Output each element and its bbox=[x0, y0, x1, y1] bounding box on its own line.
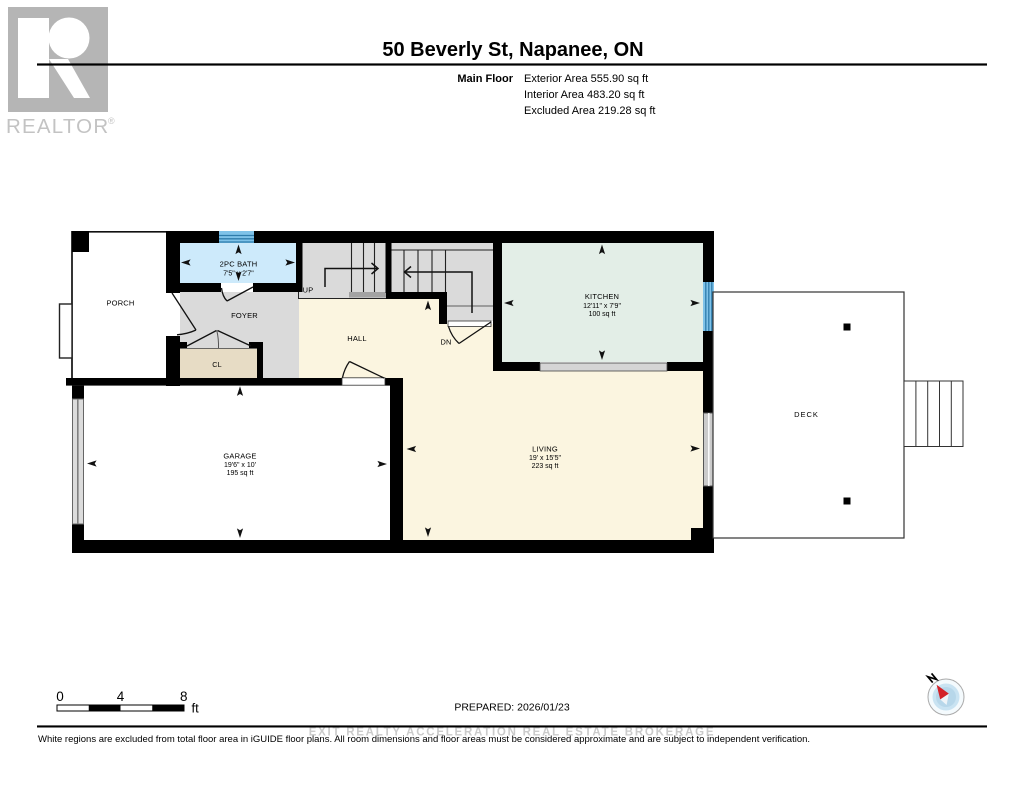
svg-text:50 Beverly St, Napanee, ON: 50 Beverly St, Napanee, ON bbox=[382, 39, 643, 61]
svg-text:Exterior Area 555.90 sq ft: Exterior Area 555.90 sq ft bbox=[524, 73, 648, 85]
svg-text:19'6" x 10': 19'6" x 10' bbox=[224, 462, 256, 469]
svg-text:0: 0 bbox=[56, 689, 64, 704]
svg-text:REALTOR: REALTOR bbox=[6, 115, 109, 138]
svg-text:19' x 15'5": 19' x 15'5" bbox=[529, 455, 562, 462]
svg-text:GARAGE: GARAGE bbox=[223, 452, 256, 461]
svg-text:Interior Area 483.20 sq ft: Interior Area 483.20 sq ft bbox=[524, 89, 644, 101]
svg-text:PORCH: PORCH bbox=[106, 299, 134, 308]
svg-text:2PC BATH: 2PC BATH bbox=[220, 260, 258, 269]
svg-text:12'11" x 7'9": 12'11" x 7'9" bbox=[583, 303, 621, 310]
svg-text:Excluded Area 219.28 sq ft: Excluded Area 219.28 sq ft bbox=[524, 105, 655, 117]
svg-text:®: ® bbox=[108, 116, 115, 126]
svg-text:KITCHEN: KITCHEN bbox=[585, 292, 619, 301]
svg-text:100 sq ft: 100 sq ft bbox=[589, 311, 616, 318]
svg-text:8: 8 bbox=[180, 689, 188, 704]
svg-text:FOYER: FOYER bbox=[231, 311, 258, 320]
svg-text:195 sq ft: 195 sq ft bbox=[227, 470, 254, 477]
svg-text:Main Floor: Main Floor bbox=[457, 73, 513, 85]
svg-text:LIVING: LIVING bbox=[532, 445, 558, 454]
svg-text:PREPARED: 2026/01/23: PREPARED: 2026/01/23 bbox=[454, 702, 570, 714]
svg-text:223 sq ft: 223 sq ft bbox=[532, 463, 559, 470]
svg-text:DN: DN bbox=[440, 338, 451, 347]
svg-text:ft: ft bbox=[192, 701, 200, 716]
svg-text:UP: UP bbox=[303, 286, 314, 295]
svg-text:DECK: DECK bbox=[794, 410, 819, 419]
svg-text:White regions are excluded fro: White regions are excluded from total fl… bbox=[38, 734, 810, 745]
svg-text:7'5" x 2'7": 7'5" x 2'7" bbox=[223, 271, 254, 278]
svg-text:HALL: HALL bbox=[347, 334, 367, 343]
svg-text:CL: CL bbox=[212, 360, 222, 369]
svg-text:4: 4 bbox=[117, 689, 125, 704]
